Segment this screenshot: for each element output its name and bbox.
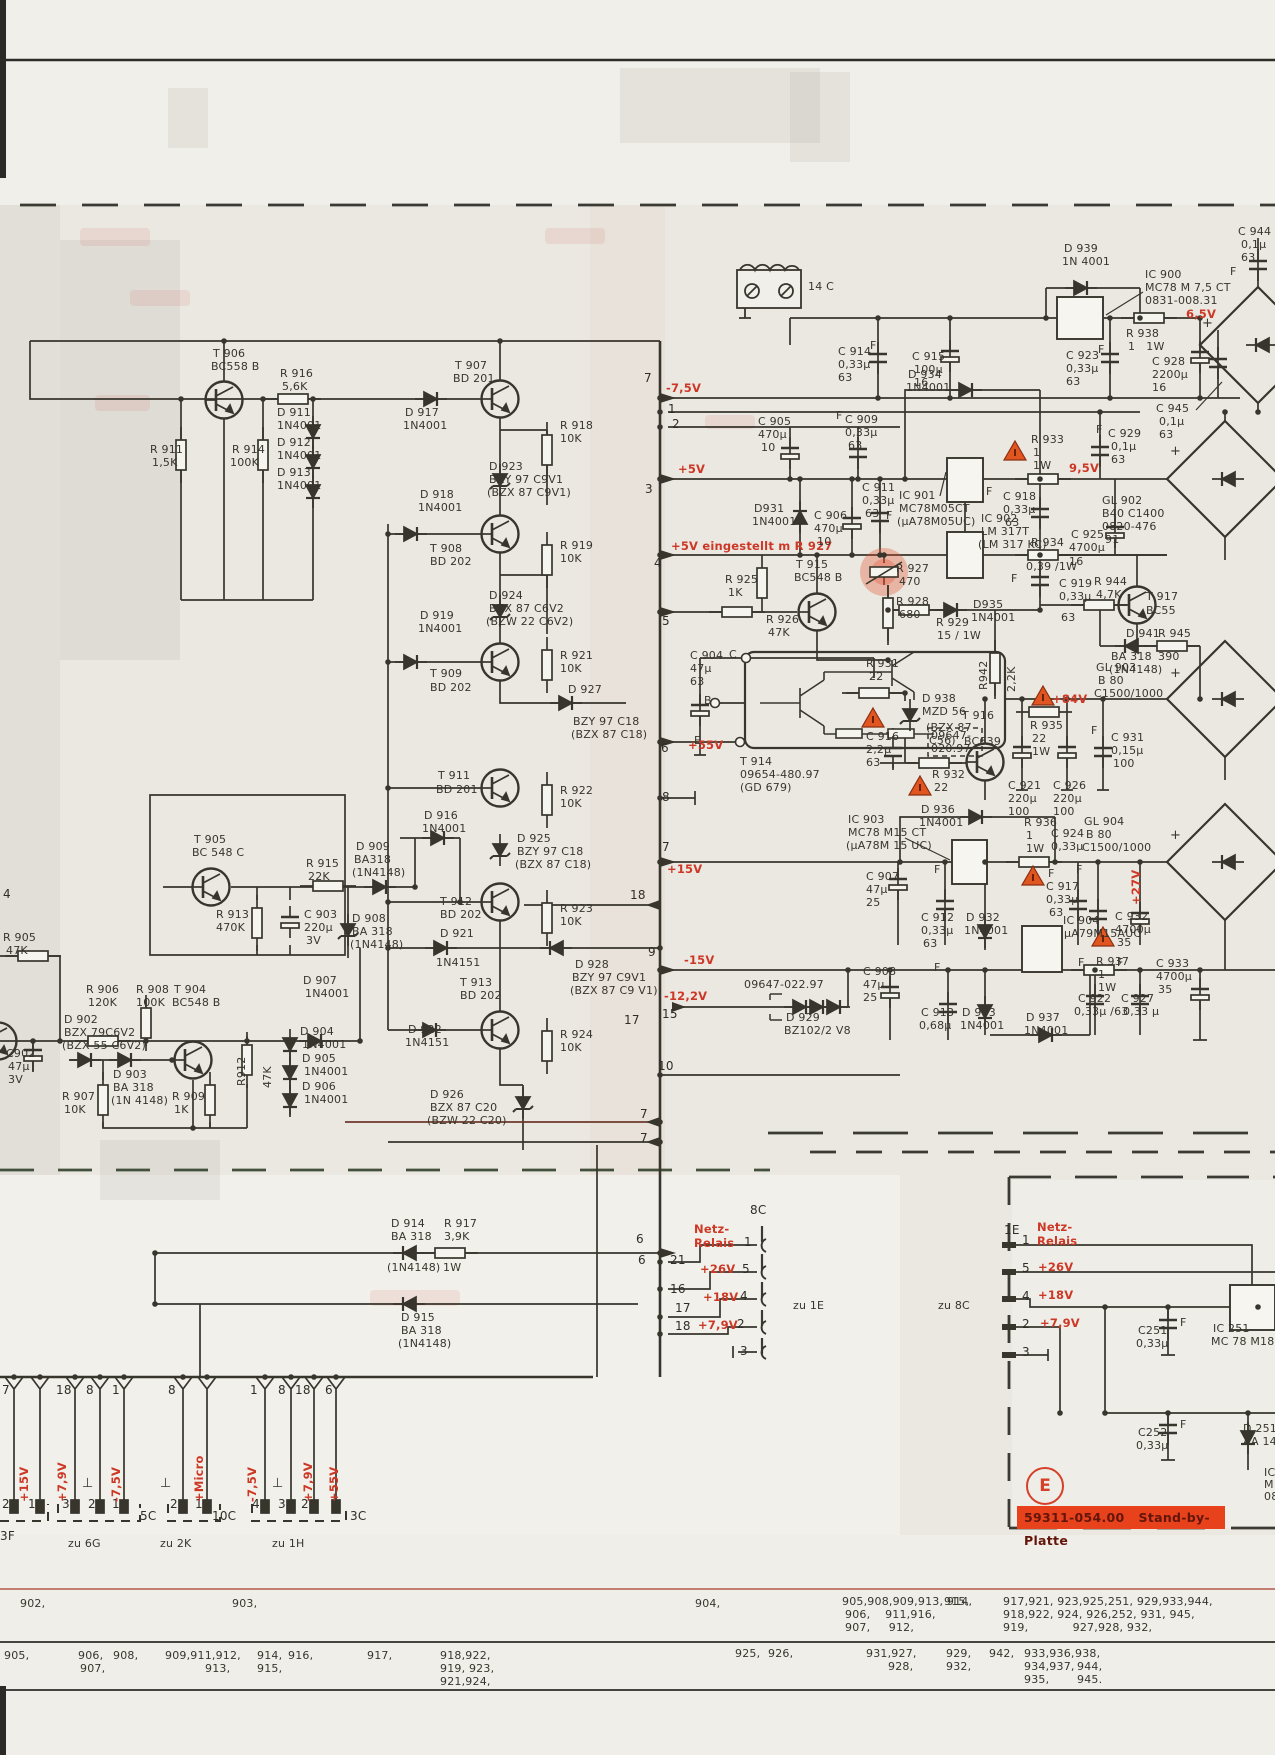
- voltage-label: +26V: [1038, 1261, 1073, 1273]
- component-label: D 929: [786, 1012, 820, 1024]
- component-label: C 912: [921, 912, 954, 924]
- component-label: 63: [1061, 612, 1075, 624]
- junction-dot: [1165, 1304, 1171, 1310]
- component-label: 1N4001: [277, 420, 321, 432]
- diode-symbol: [540, 941, 572, 955]
- component-label: 100K: [230, 457, 259, 469]
- component-label: 913,: [205, 1663, 230, 1675]
- component-label: C 906: [814, 510, 847, 522]
- pin-number: 16: [670, 1283, 686, 1295]
- pin-number: 18: [675, 1320, 691, 1332]
- component-label: 470µ: [814, 523, 843, 535]
- component-label: B: [704, 695, 712, 707]
- component-label: R 911: [150, 444, 183, 456]
- component-label: R 924: [560, 1029, 593, 1041]
- component-label: 919, 927,928, 932,: [1003, 1622, 1152, 1634]
- junction-dot: [310, 396, 316, 402]
- pin-number: 1: [744, 1236, 752, 1248]
- junction-dot: [11, 1374, 17, 1380]
- pin-number: 8: [168, 1384, 176, 1396]
- component-label: D 939: [1064, 243, 1098, 255]
- junction-dot: [902, 476, 908, 482]
- component-label: 1W: [1032, 746, 1050, 758]
- component-label: 928,: [888, 1661, 913, 1673]
- component-label: 926,: [768, 1648, 793, 1660]
- pin-number: 17: [675, 1302, 691, 1314]
- junction-dot: [1102, 1304, 1108, 1310]
- component-label: D 905: [302, 1053, 336, 1065]
- resistor-symbol: [1016, 707, 1072, 717]
- component-label: D 937: [1026, 1012, 1060, 1024]
- transistor-symbol: [482, 770, 519, 807]
- component-label: F: [1180, 1317, 1187, 1329]
- component-label: BC548 B: [172, 997, 220, 1009]
- warning-triangle-icon: [1004, 441, 1026, 460]
- component-label: (µA78M 15 UC): [846, 840, 932, 852]
- component-label: 1N4001: [304, 1094, 348, 1106]
- voltage-label: Netz-: [1037, 1221, 1072, 1233]
- component-label: C 931: [1111, 732, 1144, 744]
- component-label: 16: [1152, 382, 1166, 394]
- junction-dot: [1037, 607, 1043, 613]
- component-label: D931: [754, 503, 784, 515]
- component-label: 0,33µ: [1059, 591, 1092, 603]
- component-label: 22K: [308, 871, 330, 883]
- component-label: 2,2K: [1006, 666, 1018, 692]
- junction-dot: [1102, 1410, 1108, 1416]
- component-label: 919, 923,: [440, 1663, 494, 1675]
- component-label: D 916: [424, 810, 458, 822]
- component-label: 0,33µ: [1046, 894, 1079, 906]
- voltage-label: -7,5V: [110, 1467, 122, 1502]
- component-label: (BZX 55 C6V2): [62, 1040, 146, 1052]
- pin-number: 8: [86, 1384, 94, 1396]
- pin-number: 6: [638, 1254, 646, 1266]
- component-label: F: [1076, 864, 1083, 876]
- junction-dot: [797, 476, 803, 482]
- component-label: 10K: [560, 1042, 582, 1054]
- transistor-symbol: [206, 382, 243, 419]
- component-label: D 934: [908, 369, 942, 381]
- component-label: T 911: [438, 770, 470, 782]
- component-label: 10: [817, 536, 831, 548]
- voltage-label: +18V: [703, 1291, 738, 1303]
- component-label: 918,922,: [440, 1650, 491, 1662]
- component-label: BD 202: [430, 682, 472, 694]
- junction-dot: [657, 395, 663, 401]
- component-label: BA 318: [401, 1325, 442, 1337]
- pin-number: 4: [1022, 1290, 1030, 1302]
- component-label: 925,: [735, 1648, 760, 1660]
- component-label: C 933: [1156, 958, 1189, 970]
- connector-pin: [174, 1377, 192, 1503]
- component-label: GL 904: [1084, 816, 1124, 828]
- component-label: 938,: [1075, 1648, 1100, 1660]
- component-label: (µA78M05UC): [897, 516, 976, 528]
- component-label: C 919: [1059, 578, 1092, 590]
- component-label: 1: [1033, 447, 1040, 459]
- component-label: 63: [923, 938, 937, 950]
- component-label: (GD 679): [740, 782, 792, 794]
- component-label: IC 900: [1145, 269, 1182, 281]
- junction-dot: [1043, 315, 1049, 321]
- component-label: 25: [866, 897, 880, 909]
- junction-dot: [1037, 552, 1043, 558]
- component-label: +: [1170, 830, 1181, 842]
- pin-number: 2: [170, 1498, 178, 1510]
- voltage-label: +5V eingestellt m R 927: [671, 540, 832, 552]
- relay-14c: [737, 265, 801, 318]
- junction-dot: [657, 1331, 663, 1337]
- diode-symbol: [109, 1053, 141, 1067]
- component-label: F: [836, 410, 843, 422]
- component-label: 3,9K: [444, 1231, 470, 1243]
- component-label: BZY 97 C9V1: [489, 474, 563, 486]
- voltage-label: +27V: [1130, 870, 1142, 905]
- junction-dot: [1165, 1410, 1171, 1416]
- resistor-symbol: [542, 1018, 552, 1074]
- junction-dot: [1137, 967, 1143, 973]
- component-label: 10K: [560, 663, 582, 675]
- component-label: F: [934, 962, 941, 974]
- component-label: T 917: [1146, 591, 1178, 603]
- pin-number: 2: [1022, 1318, 1030, 1330]
- junction-dot: [30, 1038, 36, 1044]
- component-label: BD 201: [436, 784, 478, 796]
- junction-dot: [942, 859, 948, 865]
- component-label: +: [1170, 446, 1181, 458]
- component-label: R 915: [306, 858, 339, 870]
- component-label: 1,5K: [152, 457, 178, 469]
- resistor-symbol: [1015, 474, 1071, 484]
- component-label: D 927: [568, 684, 602, 696]
- component-label: BC 548 C: [192, 847, 244, 859]
- transistor-symbol: [482, 381, 519, 418]
- component-label: 470K: [216, 922, 245, 934]
- junction-dot: [287, 1038, 293, 1044]
- component-label: MC78 M15 CT: [848, 827, 926, 839]
- component-label: IC 251: [1213, 1323, 1250, 1335]
- pin-number: 1: [1022, 1234, 1030, 1246]
- component-label: 933,936,: [1024, 1648, 1075, 1660]
- component-label: C 908: [863, 966, 896, 978]
- component-label: 08: [1264, 1491, 1275, 1503]
- component-label: C 921: [1008, 780, 1041, 792]
- resistor-symbol: [757, 555, 767, 611]
- component-label: R 945: [1158, 628, 1191, 640]
- component-label: 905,: [4, 1650, 29, 1662]
- pin-number: 1: [250, 1384, 258, 1396]
- transistor-symbol: [482, 516, 519, 553]
- pin-number: 5: [1022, 1262, 1030, 1274]
- component-label: E: [694, 735, 701, 747]
- pin-number: 6: [636, 1233, 644, 1245]
- component-label: 0,33µ /63: [1074, 1006, 1129, 1018]
- component-label: 1W: [1026, 843, 1044, 855]
- component-label: R 931: [866, 658, 899, 670]
- component-label: D 913: [277, 467, 311, 479]
- pin-number: 21: [670, 1254, 686, 1266]
- component-label: 1N4151: [405, 1037, 449, 1049]
- zener-diode-symbol: [900, 699, 920, 731]
- component-label: 1N4001: [964, 925, 1008, 937]
- component-label: 0,33µ: [1051, 841, 1084, 853]
- component-label: 4700µ: [1115, 924, 1151, 936]
- component-label: C 905: [758, 416, 791, 428]
- component-label: D 909: [356, 841, 390, 853]
- component-label: 0,33µ: [862, 495, 895, 507]
- pin-number: 3: [645, 483, 653, 495]
- component-label: BC558 B: [211, 361, 259, 373]
- resistor-symbol: [709, 607, 765, 617]
- voltage-label: -7,5V: [666, 382, 701, 394]
- component-label: 0,33µ: [1066, 363, 1099, 375]
- resistor-symbol: [990, 640, 1000, 696]
- warning-triangle-icon: [1022, 866, 1044, 885]
- pin-number: 10C: [212, 1510, 236, 1522]
- junction-dot: [152, 1301, 158, 1307]
- component-label: (BZW 22 C6V2): [486, 616, 573, 628]
- component-label: 63: [866, 757, 880, 769]
- voltage-label: +84V: [1052, 693, 1087, 705]
- diode-symbol: [1212, 472, 1244, 486]
- component-label: GL 903: [1096, 662, 1136, 674]
- component-label: D 251: [1243, 1423, 1275, 1435]
- component-label: D 917: [405, 407, 439, 419]
- resistor-symbol: [542, 637, 552, 693]
- pin-number: 1: [668, 403, 676, 415]
- component-label: (1N4148): [350, 939, 403, 951]
- component-label: BA 318: [391, 1231, 432, 1243]
- component-label: D 902: [64, 1014, 98, 1026]
- component-label: 63: [690, 676, 704, 688]
- connector-pin-foot: [179, 1500, 187, 1513]
- component-label: R 908: [136, 984, 169, 996]
- component-label: 220µ: [1008, 793, 1037, 805]
- diode-symbol: [283, 1029, 297, 1061]
- component-label: 1N4001: [960, 1020, 1004, 1032]
- resistor-symbol: [1015, 550, 1071, 560]
- component-label: R 928: [896, 596, 929, 608]
- component-label: 22: [1032, 733, 1046, 745]
- component-label: 1N4001: [919, 817, 963, 829]
- component-label: T 904: [174, 984, 206, 996]
- voltage-label: +7,9V: [698, 1319, 738, 1331]
- junction-dot: [1197, 967, 1203, 973]
- component-label: 914,: [257, 1650, 282, 1662]
- junction-dot: [1255, 1304, 1261, 1310]
- component-label: 921,924,: [440, 1676, 491, 1688]
- component-label: R 906: [86, 984, 119, 996]
- component-label: 906,: [78, 1650, 103, 1662]
- component-label: BA 318: [113, 1082, 154, 1094]
- component-label: R 927: [896, 563, 929, 575]
- component-label: 09654-480.97: [740, 769, 820, 781]
- component-label: D 928: [575, 959, 609, 971]
- junction-dot: [947, 395, 953, 401]
- component-label: 10K: [560, 798, 582, 810]
- diode-symbol: [364, 880, 396, 894]
- component-label: 4700µ: [1156, 971, 1192, 983]
- resistor-symbol: [542, 772, 552, 828]
- junction-dot: [982, 859, 988, 865]
- junction-dot: [288, 1374, 294, 1380]
- junction-dot: [178, 396, 184, 402]
- component-label: 47µ: [8, 1061, 30, 1073]
- component-label: T 906: [213, 348, 245, 360]
- voltage-label: Netz-: [694, 1223, 729, 1235]
- component-label: 902,: [20, 1598, 45, 1610]
- pin-number: 3: [1022, 1346, 1030, 1358]
- component-label: 10K: [64, 1104, 86, 1116]
- pin-number: 6: [661, 742, 669, 754]
- pin-number: 7: [662, 841, 670, 853]
- transistor-symbol: [482, 1012, 519, 1049]
- component-label: C 918: [1003, 491, 1036, 503]
- component-label: 917,921, 923,925,251, 929,933,944,: [1003, 1596, 1213, 1608]
- diode-symbol: [393, 1246, 425, 1260]
- pin-number: 10: [658, 1060, 674, 1072]
- component-label: F: [934, 864, 941, 876]
- component-label: R 907: [62, 1091, 95, 1103]
- component-label: 22: [869, 671, 883, 683]
- component-label: zu 1H: [272, 1538, 305, 1550]
- component-label: 1N4001: [305, 988, 349, 1000]
- component-label: C 914: [838, 346, 871, 358]
- junction-dot: [1095, 859, 1101, 865]
- component-label: 63: [1049, 907, 1063, 919]
- component-label: 4,7K: [1096, 589, 1122, 601]
- component-label: 47K: [768, 627, 790, 639]
- junction-dot: [982, 696, 988, 702]
- component-label: 3V: [306, 935, 321, 947]
- junction-dot: [947, 315, 953, 321]
- junction-dot: [385, 785, 391, 791]
- component-label: D 921: [440, 928, 474, 940]
- component-label: BD 202: [460, 990, 502, 1002]
- terminal-circle: [742, 654, 751, 663]
- diode-symbol: [950, 383, 982, 397]
- component-label: 945.: [1077, 1674, 1102, 1686]
- component-label: C 929: [1108, 428, 1141, 440]
- voltage-label: +5V: [678, 463, 705, 475]
- connector-pin-foot: [287, 1500, 295, 1513]
- junction-dot: [849, 552, 855, 558]
- component-label: 1N4001: [403, 420, 447, 432]
- pin-number: 4: [654, 557, 662, 569]
- voltage-label: +18V: [1038, 1289, 1073, 1301]
- pin-number: 7: [640, 1132, 648, 1144]
- pin-number: 15: [662, 1008, 678, 1020]
- diode-symbol: [935, 603, 967, 617]
- component-label: 10K: [560, 916, 582, 928]
- diode-symbol: [1212, 855, 1244, 869]
- pin-number: 18: [56, 1384, 72, 1396]
- component-label: 904,: [695, 1598, 720, 1610]
- component-label: 0,33µ: [1136, 1338, 1169, 1350]
- pin-number: 7: [2, 1384, 10, 1396]
- component-label: BD 201: [453, 373, 495, 385]
- component-label: BZX 87 C20: [430, 1102, 497, 1114]
- component-label: zu 2K: [160, 1538, 191, 1550]
- junction-dot: [657, 1139, 663, 1145]
- pin-number: 5: [662, 615, 670, 627]
- component-label: 10: [761, 442, 775, 454]
- component-label: 1N4001: [1024, 1025, 1068, 1037]
- component-label: 390: [1158, 651, 1180, 663]
- diode-symbol: [395, 655, 427, 669]
- component-label: C 903: [304, 909, 337, 921]
- component-label: R 926: [766, 614, 799, 626]
- terminal-circle: [736, 738, 745, 747]
- component-label: 1N4001: [304, 1066, 348, 1078]
- pin-number: 6: [325, 1384, 333, 1396]
- pin-number: 2: [672, 418, 680, 430]
- component-label: C 925: [1071, 529, 1104, 541]
- component-label: BC548 B: [794, 572, 842, 584]
- junction-dot: [657, 1286, 663, 1292]
- component-label: 63: [865, 508, 879, 520]
- component-label: AA 143: [1243, 1436, 1275, 1448]
- component-label: C 907: [866, 871, 899, 883]
- junction-dot: [855, 476, 861, 482]
- component-label: 0,1µ: [1241, 239, 1266, 251]
- component-label: 91: [1105, 534, 1119, 546]
- component-label: 47K: [262, 1066, 274, 1088]
- component-label: B 80: [1098, 675, 1124, 687]
- resistor-symbol: [252, 895, 262, 951]
- component-label: IC 901: [899, 490, 936, 502]
- component-label: C 913: [921, 1007, 954, 1019]
- junction-dot: [262, 1374, 268, 1380]
- junction-dot: [1255, 409, 1261, 415]
- junction-dot: [260, 396, 266, 402]
- component-label: D 903: [113, 1069, 147, 1081]
- pin-number: 5C: [140, 1510, 156, 1522]
- component-label: 1K: [728, 587, 743, 599]
- pin-number: 2: [88, 1498, 96, 1510]
- junction-dot: [1197, 395, 1203, 401]
- component-label: ⊥: [82, 1478, 94, 1490]
- component-label: 63: [848, 440, 862, 452]
- junction-dot: [385, 659, 391, 665]
- connector-pin-foot: [36, 1500, 44, 1513]
- component-label: 909,911,912,: [165, 1650, 241, 1662]
- component-label: R 932: [932, 769, 965, 781]
- component-label: 100K: [136, 997, 165, 1009]
- component-label: 929,: [946, 1648, 971, 1660]
- bridge-rectifiers: [1167, 287, 1275, 920]
- junction-dot: [1092, 967, 1098, 973]
- component-label: R 919: [560, 540, 593, 552]
- component-label: BZY 97 C18: [573, 716, 639, 728]
- voltage-label: +7,9V: [1040, 1317, 1080, 1329]
- component-label: R912: [236, 1057, 248, 1086]
- component-label: ⊥: [272, 1478, 284, 1490]
- component-label: 0,68µ: [919, 1020, 952, 1032]
- component-label: 63: [1066, 376, 1080, 388]
- component-label: T 913: [460, 977, 492, 989]
- component-label: R 937: [1096, 956, 1129, 968]
- diode-symbol: [283, 1057, 297, 1089]
- component-label: 1: [1026, 830, 1033, 842]
- component-label: D 923: [489, 461, 523, 473]
- component-label: 47µ: [866, 884, 888, 896]
- component-label: C 944: [1238, 226, 1271, 238]
- component-label: zu 8C: [938, 1300, 970, 1312]
- component-label: D 911: [277, 407, 311, 419]
- junction-dot: [657, 409, 663, 415]
